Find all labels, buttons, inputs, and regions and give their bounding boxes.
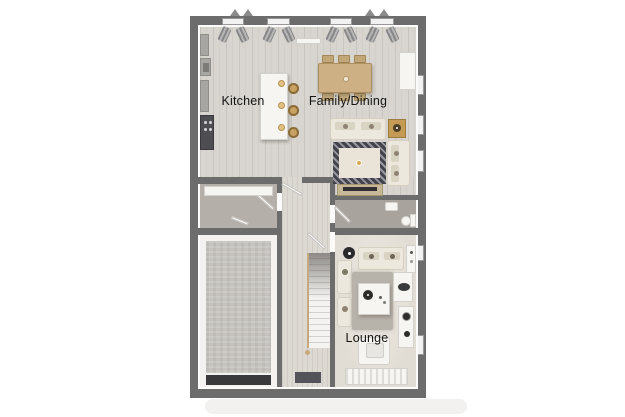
table-centerpiece	[343, 76, 349, 82]
wall-hall-left	[277, 211, 282, 387]
tall-cabinet	[399, 52, 416, 90]
armchair	[337, 297, 352, 327]
window	[417, 75, 424, 95]
cushion	[342, 306, 348, 312]
vent-arrow-icon	[379, 9, 389, 16]
wall-kitchen-utility	[198, 177, 282, 184]
cooker	[200, 115, 214, 150]
stairs	[307, 253, 330, 348]
coffee-table	[358, 283, 390, 315]
plant	[342, 269, 348, 275]
throw-pillow	[390, 254, 395, 259]
cooker-knob	[204, 128, 207, 131]
window	[330, 18, 352, 25]
speaker	[403, 313, 410, 320]
sofa-second	[387, 140, 410, 186]
window	[222, 18, 244, 25]
lamp-highlight	[396, 127, 398, 129]
shelf-item	[410, 251, 413, 254]
plate	[278, 102, 285, 109]
armchair	[337, 260, 352, 294]
radiator	[296, 38, 321, 44]
dining-chair	[338, 55, 350, 63]
interior: Kitchen Family/Dining Lounge	[198, 25, 418, 389]
throw-pillow	[369, 124, 374, 129]
throw-pillow	[369, 254, 374, 259]
window	[417, 150, 424, 172]
vent-arrow-icon	[365, 9, 375, 16]
dining-chair	[354, 55, 366, 63]
lounge-sofa	[358, 247, 404, 270]
toilet-cistern	[410, 214, 416, 227]
speaker-tower	[398, 306, 414, 348]
kitchen-counter	[200, 34, 209, 56]
dining-table	[318, 63, 372, 93]
plan-shadow	[205, 399, 467, 414]
doormat	[295, 372, 321, 383]
sofa	[330, 118, 386, 140]
throw-pillow	[343, 124, 348, 129]
wall-hall-top	[302, 177, 330, 183]
chair-seat	[366, 343, 384, 358]
window	[267, 18, 290, 25]
floor-plan: Kitchen Family/Dining Lounge	[190, 16, 426, 398]
floor-lamp-highlight	[348, 252, 351, 255]
plate	[278, 80, 285, 87]
wall-shelf	[406, 245, 416, 273]
vent-arrow-icon	[243, 9, 253, 16]
stair-shade	[309, 253, 330, 348]
vent-arrow-icon	[230, 9, 240, 16]
family-dining-label: Family/Dining	[309, 94, 387, 108]
cooker-knob	[209, 121, 212, 124]
tv-console	[393, 272, 413, 302]
lounge-label: Lounge	[346, 331, 389, 345]
window	[417, 245, 424, 261]
tv	[343, 187, 377, 191]
record-center	[367, 294, 369, 296]
bar-stool	[288, 127, 299, 138]
kitchen-sink-unit	[200, 58, 211, 76]
table-item	[383, 301, 386, 304]
wall-utility-garage	[198, 228, 282, 235]
rug-center	[339, 148, 380, 178]
cooker-knob	[209, 128, 212, 131]
speaker	[404, 331, 410, 337]
plate	[278, 124, 285, 131]
garage-floor	[206, 241, 271, 373]
shelf-item	[410, 260, 413, 263]
window	[417, 115, 424, 135]
garage-door	[206, 375, 271, 385]
window	[370, 18, 394, 25]
window	[417, 335, 424, 355]
utility-counter	[204, 186, 273, 196]
floorplan-image: Kitchen Family/Dining Lounge	[0, 0, 625, 417]
dining-chair	[322, 55, 334, 63]
sink	[203, 63, 209, 72]
kitchen-counter	[200, 80, 209, 112]
window-seat	[345, 368, 408, 385]
cooker-knob	[204, 121, 207, 124]
tv-unit	[337, 184, 383, 196]
throw-pillow	[394, 171, 399, 176]
bar-stool	[288, 83, 299, 94]
lamp-table	[388, 119, 406, 138]
patterned-rug	[333, 142, 386, 184]
bar-stool	[288, 105, 299, 116]
rug-motif	[356, 160, 362, 166]
wc-basin	[385, 202, 398, 211]
table-item	[379, 296, 382, 299]
kitchen-label: Kitchen	[221, 94, 264, 108]
console-tv	[398, 283, 410, 291]
stair-newel	[305, 350, 310, 355]
throw-pillow	[394, 151, 399, 156]
wall-hall-right	[330, 252, 335, 387]
wall-wc-lounge	[335, 228, 418, 235]
